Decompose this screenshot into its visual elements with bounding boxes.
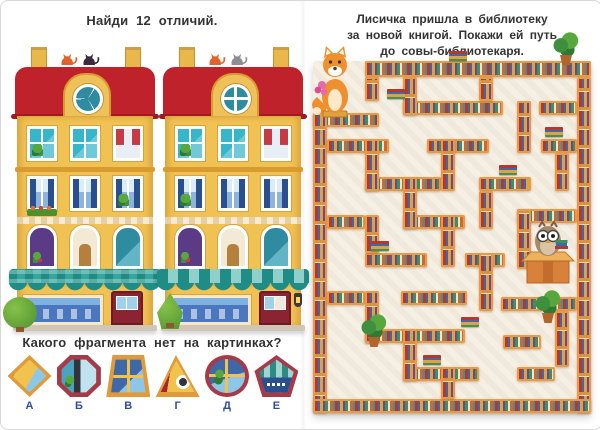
fragment-option-g[interactable]: Г: [155, 355, 200, 412]
fragment-option-b[interactable]: Б: [56, 355, 101, 412]
wall-lantern: [294, 293, 302, 307]
bookshelf-wall: [365, 139, 379, 191]
window-blue-curtains: [113, 176, 143, 211]
book-stack: [545, 127, 563, 137]
cat-icon: [59, 51, 78, 67]
bookshelf-wall: [365, 77, 379, 101]
cat-icon: [207, 51, 226, 67]
bookshelf-wall: [479, 177, 531, 191]
ledge: [15, 167, 155, 172]
window-red-curtains: [261, 126, 291, 161]
bookshelf-wall: [313, 399, 591, 413]
book-stack: [423, 355, 441, 365]
cat-icon: [229, 51, 248, 67]
fragment-letter: Д: [205, 400, 250, 412]
bush: [3, 297, 37, 329]
window-blue-curtains: [261, 176, 291, 211]
shop-awning: [157, 269, 309, 283]
fragment-options-row: А Б В Г Д Е: [7, 355, 299, 412]
shop-awning: [9, 269, 161, 283]
fragment-question: Какого фрагмента нет на картинках?: [1, 335, 303, 350]
window: [218, 126, 248, 161]
balcony-door: [218, 225, 248, 269]
caption-line: Лисичка пришла в библиотеку: [303, 11, 600, 27]
fragment-letter: В: [106, 400, 151, 412]
shop-display-window: [171, 295, 251, 325]
potted-plant: [535, 289, 561, 323]
bookshelf-wall: [479, 253, 493, 311]
book-stack: [449, 51, 467, 61]
window-blue-curtains: [175, 176, 205, 211]
window-blue-curtains: [218, 176, 248, 211]
fox-character[interactable]: [309, 45, 357, 119]
bookshelf-wall: [517, 101, 531, 153]
round-attic-window: [221, 84, 251, 114]
arched-window: [113, 225, 143, 269]
building-right: [163, 47, 303, 333]
right-page: Лисичка пришла в библиотеку за новой кни…: [303, 1, 600, 429]
bookshelf-wall: [577, 77, 591, 413]
bookshelf-wall: [479, 77, 493, 101]
fragment-letter: Б: [56, 400, 101, 412]
arched-window: [261, 225, 291, 269]
bookshelf-wall: [403, 177, 417, 229]
fragment-option-v[interactable]: В: [106, 355, 151, 412]
book-stack: [387, 89, 405, 99]
cat-icon: [81, 51, 100, 67]
bookshelf-wall: [427, 139, 489, 153]
window-blue-curtains: [70, 176, 100, 211]
fragment-letter: Е: [254, 400, 299, 412]
window-red-curtains: [113, 126, 143, 161]
bookshelf-wall: [517, 367, 555, 381]
building-base: [13, 325, 157, 331]
shop-door: [111, 291, 143, 325]
window: [27, 126, 57, 161]
flower-box: [27, 209, 57, 216]
maze: [313, 61, 591, 413]
bookshelf-wall: [441, 139, 455, 191]
bookshelf-wall: [541, 139, 577, 153]
bookshelf-wall: [441, 215, 455, 267]
bookshelf-wall: [403, 329, 417, 381]
bookshelf-wall: [479, 191, 493, 229]
arched-window: [27, 225, 57, 269]
bookshelf-wall: [441, 367, 455, 399]
building-base: [161, 325, 305, 331]
building-left: [15, 47, 155, 333]
bookshelf-wall: [401, 291, 467, 305]
owl-librarian-at-desk[interactable]: [519, 213, 577, 293]
window: [175, 126, 205, 161]
balcony-door: [70, 225, 100, 269]
bookshelf-wall: [403, 77, 417, 115]
bookshelf-wall: [313, 113, 327, 413]
potted-plant: [553, 31, 579, 65]
fragment-option-d[interactable]: Д: [205, 355, 250, 412]
book-stack: [499, 165, 517, 175]
find-differences-title: Найди 12 отличий.: [1, 13, 303, 28]
left-page: Найди 12 отличий.: [1, 1, 303, 429]
bookshelf-wall: [327, 139, 389, 153]
trim-band: [165, 217, 301, 224]
arched-window: [175, 225, 205, 269]
fragment-letter: Г: [155, 400, 200, 412]
bookshelf-wall: [365, 253, 427, 267]
bookshelf-wall: [327, 215, 365, 229]
bookshelf-wall: [503, 335, 541, 349]
window: [70, 126, 100, 161]
fragment-option-a[interactable]: А: [7, 355, 52, 412]
book-stack: [371, 241, 389, 251]
potted-plant: [361, 313, 387, 347]
book-stack: [461, 317, 479, 327]
shop-door: [259, 291, 291, 325]
fragment-option-e[interactable]: Е: [254, 355, 299, 412]
ledge: [163, 167, 303, 172]
bookshelf-wall: [327, 291, 365, 305]
bookshelf-wall: [403, 101, 503, 115]
fragment-letter: А: [7, 400, 52, 412]
bookshelf-wall: [539, 101, 577, 115]
book-spread: Найди 12 отличий.: [0, 0, 600, 430]
trim-band: [17, 217, 153, 224]
round-attic-window: [73, 84, 103, 114]
bookshelf-wall: [555, 153, 569, 191]
